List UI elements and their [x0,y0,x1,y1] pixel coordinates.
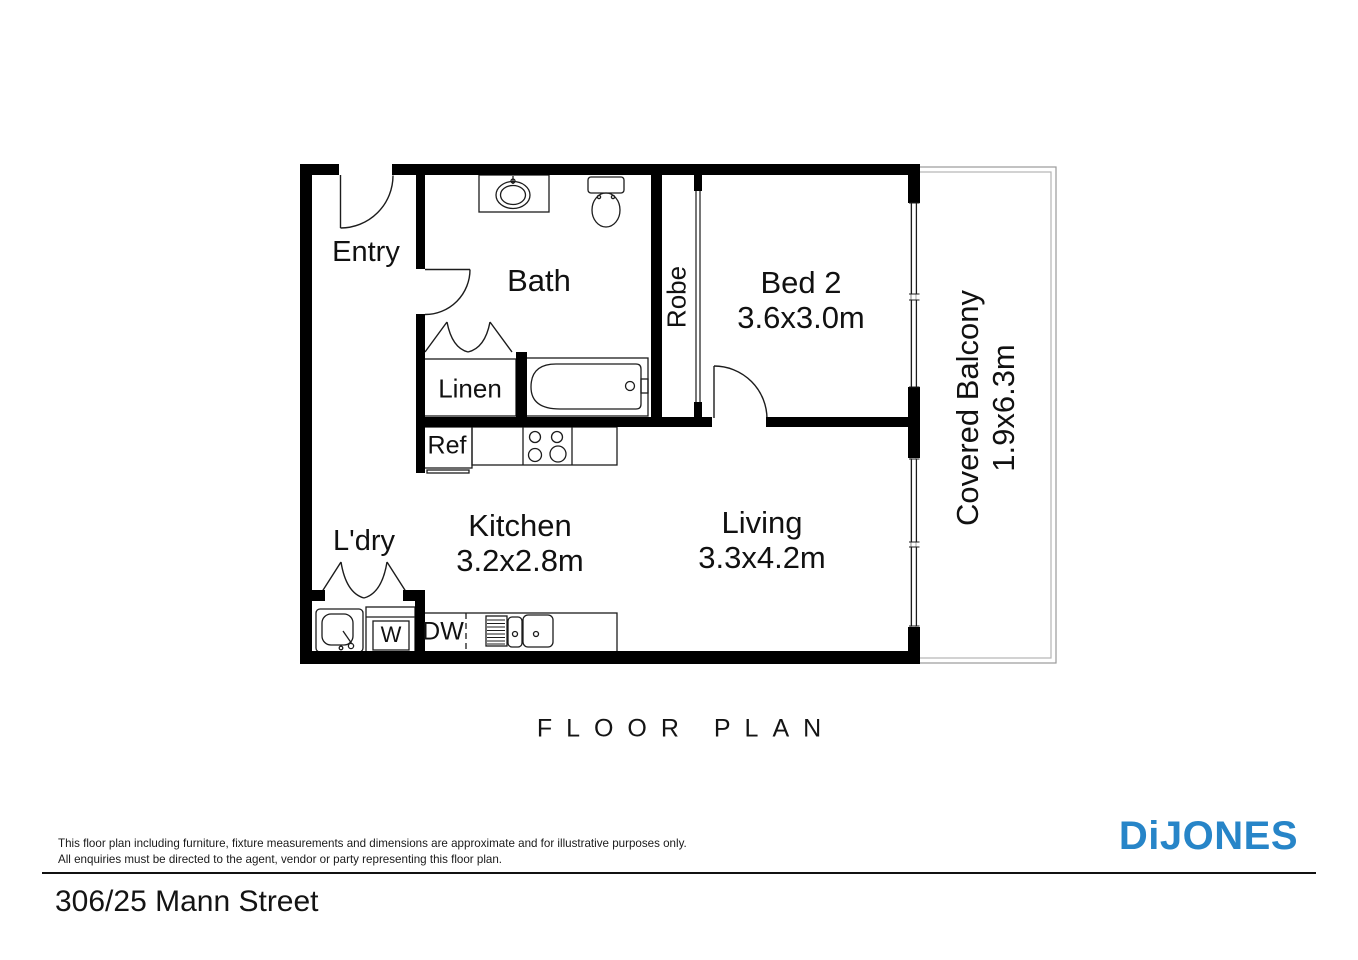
floor-plan-page: Entry Bath Linen Robe Bed 2 3.6x3.0m Kit… [0,0,1358,960]
property-address: 306/25 Mann Street [55,885,319,919]
brand-logo: DiJONES [1119,814,1298,859]
room-label-bed2: Bed 2 3.6x3.0m [737,265,865,335]
room-label-linen: Linen [438,375,502,404]
bath-door [425,270,470,315]
fixture-label-washer: W [381,623,402,647]
bed2-dimensions: 3.6x3.0m [737,300,865,335]
disclaimer-line-2: All enquiries must be directed to the ag… [58,852,687,868]
fixture-label-ref: Ref [428,432,467,460]
disclaimer-line-1: This floor plan including furniture, fix… [58,836,687,852]
balcony-name: Covered Balcony [950,290,986,526]
kitchen-dimensions: 3.2x2.8m [456,543,584,578]
room-label-ldry: L'dry [333,526,395,558]
robe-sliding-door [696,191,700,402]
entry-door [341,175,394,228]
living-dimensions: 3.3x4.2m [698,540,826,575]
room-label-living: Living 3.3x4.2m [698,505,826,575]
footer-divider-line [42,872,1316,874]
balcony-dimensions: 1.9x6.3m [986,290,1022,526]
living-name: Living [698,505,826,540]
room-label-robe: Robe [663,266,692,328]
floor-plan-title: FLOOR PLAN [537,715,835,744]
fixture-label-dw: DW [422,618,464,646]
room-label-bath: Bath [507,264,571,298]
room-label-kitchen: Kitchen 3.2x2.8m [456,508,584,578]
disclaimer-text: This floor plan including furniture, fix… [58,836,687,867]
laundry-bifold-doors [318,562,410,598]
kitchen-name: Kitchen [456,508,584,543]
room-label-balcony: Covered Balcony 1.9x6.3m [950,290,1022,526]
room-label-entry: Entry [332,237,400,269]
linen-bifold-doors [425,322,512,352]
bed2-name: Bed 2 [737,265,865,300]
bed2-door [714,366,767,419]
